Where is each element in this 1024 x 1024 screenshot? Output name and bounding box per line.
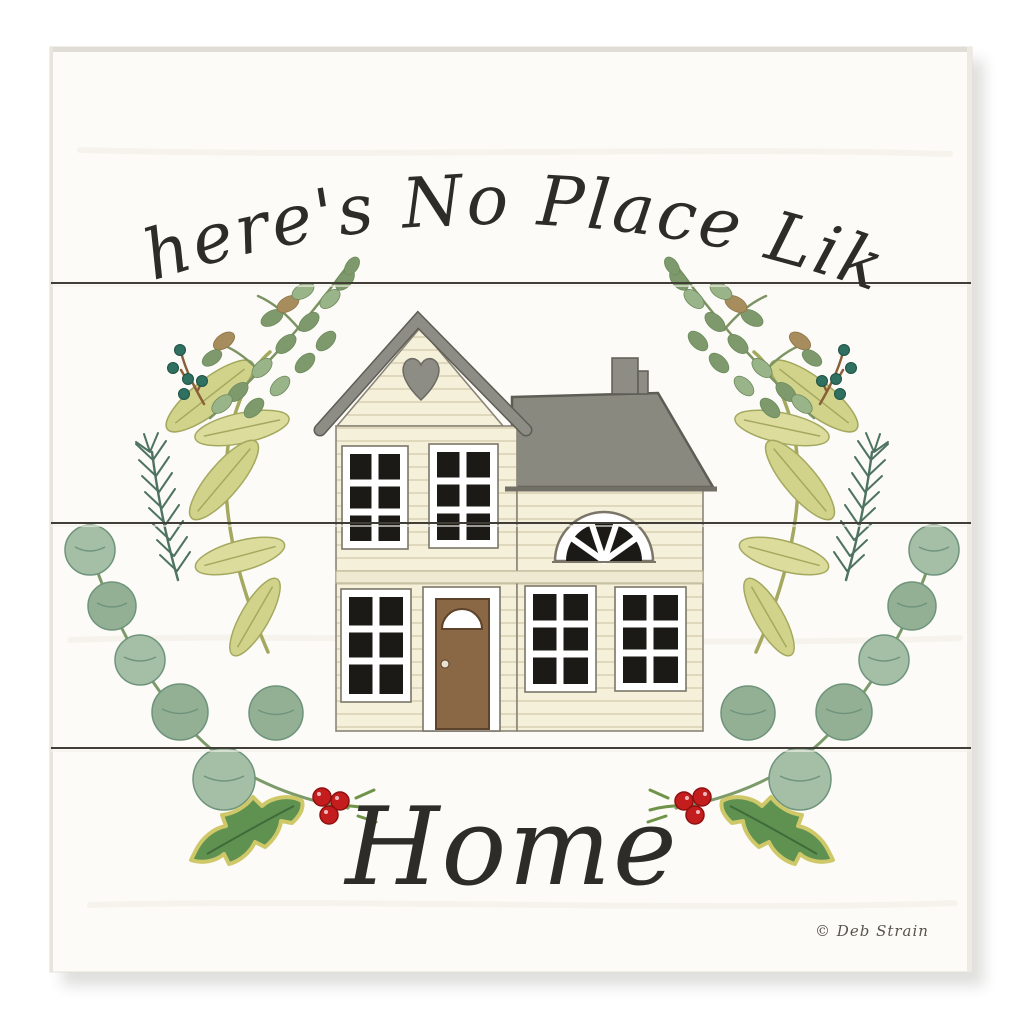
board-top-bevel bbox=[50, 47, 972, 52]
window-upper-right bbox=[429, 444, 498, 548]
board-left-bevel bbox=[50, 47, 53, 972]
front-door bbox=[423, 587, 500, 731]
product-photo: There's No Place Like Home © Deb Strain bbox=[0, 0, 1024, 1024]
floor-trim-band bbox=[336, 571, 703, 583]
artist-signature: © Deb Strain bbox=[815, 922, 929, 940]
window-wing-left bbox=[525, 586, 596, 692]
home-text: Home bbox=[343, 785, 679, 910]
window-wing-right bbox=[615, 587, 686, 691]
window-upper-left bbox=[342, 446, 408, 549]
chimney-step bbox=[638, 371, 648, 394]
chimney bbox=[612, 358, 638, 394]
board-right-bevel bbox=[967, 47, 972, 972]
window-lower-left bbox=[341, 589, 411, 702]
artwork-canvas: There's No Place Like Home © Deb Strain bbox=[0, 0, 1024, 1024]
